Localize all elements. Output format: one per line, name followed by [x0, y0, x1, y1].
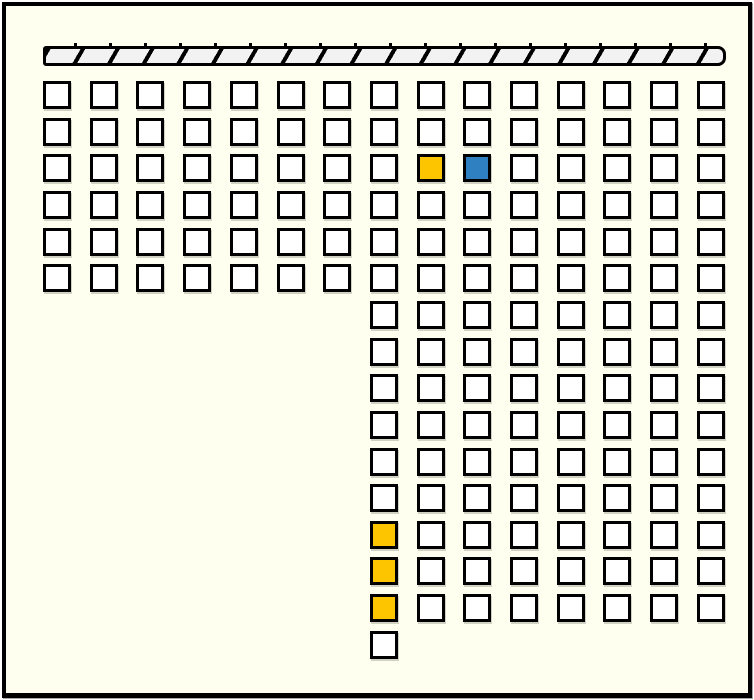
seat[interactable] — [370, 448, 398, 476]
seat[interactable] — [510, 154, 538, 182]
seat[interactable] — [510, 521, 538, 549]
seat[interactable] — [603, 484, 631, 512]
seat[interactable] — [510, 81, 538, 109]
seat[interactable] — [463, 374, 491, 402]
seat[interactable] — [183, 154, 211, 182]
seat[interactable] — [603, 557, 631, 585]
seat[interactable] — [557, 484, 585, 512]
seat[interactable] — [557, 264, 585, 292]
seat[interactable] — [323, 228, 351, 256]
seat[interactable] — [697, 521, 725, 549]
seat[interactable] — [697, 191, 725, 219]
seat[interactable] — [90, 191, 118, 219]
seat[interactable] — [697, 118, 725, 146]
seat[interactable] — [697, 484, 725, 512]
seat[interactable] — [370, 338, 398, 366]
seat[interactable] — [697, 448, 725, 476]
seat[interactable] — [417, 557, 445, 585]
seat[interactable] — [370, 374, 398, 402]
seat[interactable] — [557, 118, 585, 146]
seat[interactable] — [43, 191, 71, 219]
seat[interactable] — [603, 301, 631, 329]
seat[interactable] — [136, 191, 164, 219]
seat[interactable] — [510, 118, 538, 146]
seat[interactable] — [603, 191, 631, 219]
seat[interactable] — [510, 594, 538, 622]
seat[interactable] — [463, 411, 491, 439]
seat[interactable] — [43, 118, 71, 146]
seat[interactable] — [136, 264, 164, 292]
seat[interactable] — [650, 484, 678, 512]
seat[interactable] — [370, 484, 398, 512]
seat[interactable] — [463, 118, 491, 146]
seat[interactable] — [650, 81, 678, 109]
seat[interactable] — [277, 228, 305, 256]
seat[interactable] — [323, 81, 351, 109]
seat[interactable] — [650, 154, 678, 182]
seat[interactable] — [603, 521, 631, 549]
seat[interactable] — [417, 228, 445, 256]
seat[interactable] — [650, 594, 678, 622]
seat[interactable] — [136, 81, 164, 109]
seat[interactable] — [417, 374, 445, 402]
seat[interactable] — [603, 118, 631, 146]
seat[interactable] — [557, 448, 585, 476]
seat[interactable] — [510, 374, 538, 402]
seat[interactable] — [136, 228, 164, 256]
seat[interactable] — [417, 484, 445, 512]
seat[interactable] — [603, 374, 631, 402]
seat[interactable] — [650, 228, 678, 256]
seat[interactable] — [277, 118, 305, 146]
seat[interactable] — [323, 154, 351, 182]
seat[interactable] — [43, 228, 71, 256]
seat[interactable] — [557, 154, 585, 182]
seat[interactable] — [230, 81, 258, 109]
seat[interactable] — [510, 301, 538, 329]
seat[interactable] — [697, 264, 725, 292]
seat[interactable] — [510, 411, 538, 439]
seat[interactable] — [183, 264, 211, 292]
seat[interactable] — [650, 191, 678, 219]
seat[interactable] — [370, 154, 398, 182]
seat[interactable] — [370, 301, 398, 329]
seat[interactable] — [510, 484, 538, 512]
seat[interactable] — [603, 594, 631, 622]
seat[interactable] — [603, 338, 631, 366]
seat[interactable] — [417, 448, 445, 476]
seat[interactable] — [697, 228, 725, 256]
seat[interactable] — [417, 264, 445, 292]
seat[interactable] — [277, 154, 305, 182]
seat[interactable] — [370, 228, 398, 256]
seat[interactable] — [323, 191, 351, 219]
seat[interactable] — [557, 411, 585, 439]
seat[interactable] — [697, 557, 725, 585]
seat[interactable] — [90, 81, 118, 109]
seat[interactable] — [370, 557, 398, 585]
seat[interactable] — [463, 338, 491, 366]
seat[interactable] — [650, 411, 678, 439]
seat[interactable] — [650, 448, 678, 476]
seat[interactable] — [90, 264, 118, 292]
seat[interactable] — [463, 228, 491, 256]
seat[interactable] — [603, 228, 631, 256]
seat[interactable] — [557, 191, 585, 219]
seat[interactable] — [650, 338, 678, 366]
seat[interactable] — [370, 81, 398, 109]
seat[interactable] — [463, 594, 491, 622]
seat[interactable] — [230, 191, 258, 219]
seat[interactable] — [557, 557, 585, 585]
seat[interactable] — [370, 264, 398, 292]
seat[interactable] — [463, 154, 491, 182]
seat[interactable] — [557, 374, 585, 402]
seat[interactable] — [603, 154, 631, 182]
seat[interactable] — [323, 264, 351, 292]
seat[interactable] — [697, 338, 725, 366]
seat[interactable] — [697, 301, 725, 329]
seat[interactable] — [43, 154, 71, 182]
seat[interactable] — [650, 301, 678, 329]
seat[interactable] — [136, 118, 164, 146]
seat[interactable] — [417, 301, 445, 329]
seat[interactable] — [557, 338, 585, 366]
seat[interactable] — [277, 264, 305, 292]
seat[interactable] — [557, 594, 585, 622]
seat[interactable] — [370, 631, 398, 659]
seat[interactable] — [603, 411, 631, 439]
seat[interactable] — [463, 448, 491, 476]
seat[interactable] — [136, 154, 164, 182]
seat[interactable] — [463, 484, 491, 512]
seat[interactable] — [697, 374, 725, 402]
seat[interactable] — [697, 81, 725, 109]
seat[interactable] — [183, 191, 211, 219]
seat[interactable] — [277, 191, 305, 219]
seat[interactable] — [417, 118, 445, 146]
seat[interactable] — [463, 81, 491, 109]
seat[interactable] — [510, 191, 538, 219]
seat[interactable] — [230, 154, 258, 182]
seat[interactable] — [603, 264, 631, 292]
seat[interactable] — [370, 411, 398, 439]
seat[interactable] — [650, 557, 678, 585]
seat[interactable] — [230, 264, 258, 292]
seat[interactable] — [650, 521, 678, 549]
seat[interactable] — [43, 264, 71, 292]
seat[interactable] — [650, 264, 678, 292]
seat[interactable] — [510, 228, 538, 256]
seat[interactable] — [183, 81, 211, 109]
seat[interactable] — [510, 557, 538, 585]
seat[interactable] — [43, 81, 71, 109]
seat[interactable] — [90, 154, 118, 182]
seat[interactable] — [557, 301, 585, 329]
seat[interactable] — [650, 374, 678, 402]
seat[interactable] — [510, 338, 538, 366]
seat[interactable] — [463, 301, 491, 329]
seat[interactable] — [370, 594, 398, 622]
seat[interactable] — [183, 228, 211, 256]
seat[interactable] — [417, 81, 445, 109]
seat[interactable] — [417, 594, 445, 622]
seat[interactable] — [230, 228, 258, 256]
seat[interactable] — [557, 81, 585, 109]
seat[interactable] — [417, 191, 445, 219]
seat[interactable] — [463, 557, 491, 585]
seating-area — [6, 6, 748, 693]
seat[interactable] — [370, 521, 398, 549]
seat[interactable] — [230, 118, 258, 146]
seat[interactable] — [90, 228, 118, 256]
seat[interactable] — [697, 594, 725, 622]
seat[interactable] — [510, 264, 538, 292]
seat[interactable] — [417, 154, 445, 182]
seat[interactable] — [697, 154, 725, 182]
seat[interactable] — [463, 264, 491, 292]
seat[interactable] — [557, 228, 585, 256]
seat[interactable] — [323, 118, 351, 146]
seat[interactable] — [183, 118, 211, 146]
seat[interactable] — [603, 448, 631, 476]
seat[interactable] — [557, 521, 585, 549]
seat[interactable] — [697, 411, 725, 439]
seat[interactable] — [650, 118, 678, 146]
seat[interactable] — [370, 118, 398, 146]
seat[interactable] — [463, 521, 491, 549]
seat[interactable] — [510, 448, 538, 476]
seat[interactable] — [417, 338, 445, 366]
seat[interactable] — [90, 118, 118, 146]
seat[interactable] — [463, 191, 491, 219]
seat[interactable] — [603, 81, 631, 109]
seat[interactable] — [370, 191, 398, 219]
seat[interactable] — [417, 521, 445, 549]
seat[interactable] — [277, 81, 305, 109]
seating-chart-window — [2, 2, 752, 698]
seat[interactable] — [417, 411, 445, 439]
